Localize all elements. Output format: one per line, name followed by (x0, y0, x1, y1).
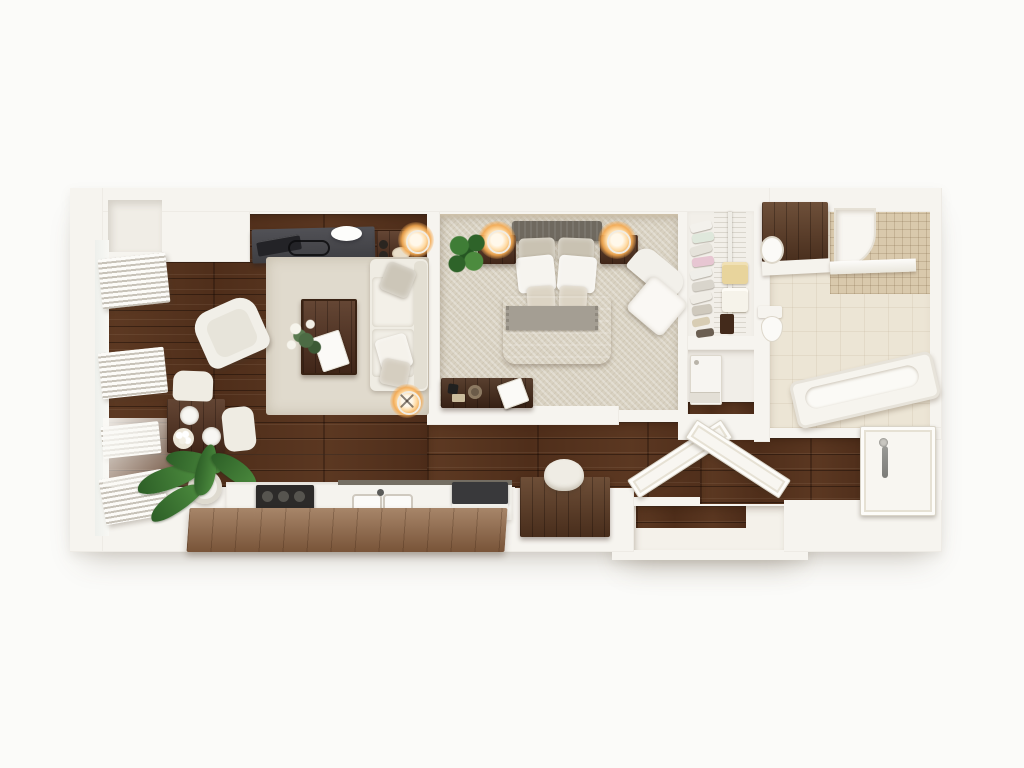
coffee-cup-1 (379, 240, 388, 249)
bedroom-closet-wall (678, 212, 688, 424)
office-chair (544, 459, 584, 491)
door-lock (879, 438, 888, 447)
washer-drawer (690, 392, 720, 403)
burner-2 (278, 491, 289, 502)
entry-alcove-niche (108, 200, 162, 252)
door-handle (882, 446, 888, 478)
sofa-backrest (414, 261, 427, 389)
bedroom-south-wall (427, 406, 619, 425)
faucet (377, 489, 384, 496)
dresser-box-cream (452, 394, 465, 402)
serving-tray (288, 240, 330, 256)
dining-chair-1 (172, 370, 213, 401)
floor-plan-stage (0, 0, 1024, 768)
decor-bowl (331, 226, 362, 241)
table-lamp (406, 230, 430, 254)
window-blinds-1 (98, 253, 171, 310)
front-door (860, 426, 936, 516)
washer-knob (694, 360, 699, 365)
bedroom-wall-trim (440, 214, 680, 220)
entry-niche-wood-strip (636, 506, 746, 528)
kitchen-island (186, 508, 507, 552)
bedside-lamp-right (607, 230, 631, 254)
floral-dish (173, 428, 194, 449)
coffee-station (452, 482, 508, 504)
folded-towels-2 (722, 288, 748, 312)
dinner-plate-1 (180, 406, 199, 425)
folded-towels-1 (722, 262, 748, 284)
storage-box (720, 314, 734, 334)
window-blinds-2 (98, 347, 168, 400)
burner-3 (294, 491, 305, 502)
dinner-plate-2 (202, 427, 221, 446)
burner-1 (262, 491, 273, 502)
dresser-box-dark (447, 383, 458, 394)
bedroom-plant (445, 230, 493, 282)
vanity-sink (760, 236, 784, 264)
flower-arrangement (283, 315, 325, 361)
closet-laundry-wall (688, 336, 756, 350)
throw-blanket (506, 306, 598, 330)
dining-chair-2 (221, 405, 257, 452)
dresser-dish (468, 385, 482, 399)
